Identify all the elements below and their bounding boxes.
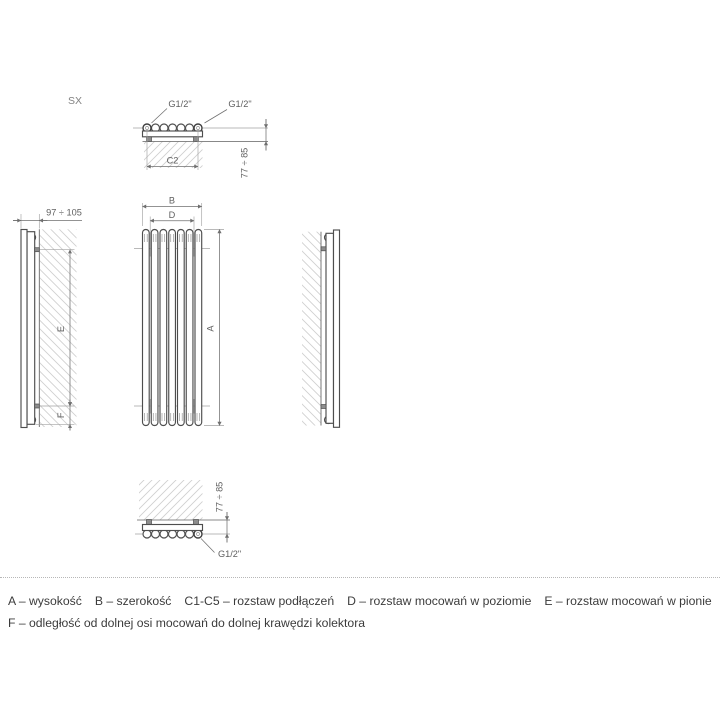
dim-label-wall-distance: 97 ÷ 105 [46,207,82,217]
connection-label-bottom: G1/2" [218,549,241,559]
collector-bar [143,525,203,531]
dim-label-mount-horizontal: D [169,210,176,220]
connection-circle [194,530,202,538]
wall-hatch [302,232,321,426]
dim-label-height: A [206,325,216,332]
right-side-view [302,230,340,427]
dim-label-c2: C2 [167,156,179,166]
tube-circles [143,530,202,538]
legend-item-b: B – szerokość [95,594,172,608]
connection-label-left: G1/2" [168,99,191,109]
leader-line [201,539,215,553]
mount-bracket [321,405,326,409]
legend: A – wysokość B – szerokość C1-C5 – rozst… [0,577,720,630]
legend-item-d: D – rozstaw mocowań w poziomie [347,594,531,608]
dim-label-depth-top: 77 ÷ 85 [240,148,250,179]
collector-profile [27,232,35,425]
legend-line-1: A – wysokość B – szerokość C1-C5 – rozst… [8,594,712,608]
mount-bracket [194,520,199,525]
dim-label-mount-vertical: E [56,326,66,332]
mount-bracket [147,520,152,525]
model-label: SX [68,95,82,107]
mount-bracket [321,247,326,251]
panel-profile [21,230,27,428]
mount-bracket [35,404,40,408]
wall-hatch [139,480,203,520]
dim-label-bottom-offset: F [56,412,66,418]
leader-line [152,109,168,124]
dim-label-width: B [169,196,175,206]
radiator-dimension-drawing: SX G1/2" G1/2" C2 77 ÷ 85 [0,0,720,720]
collector-bar [143,131,203,137]
dim-label-depth-bottom: 77 ÷ 85 [215,482,225,513]
radiator-tubes [143,230,202,426]
bottom-view: 77 ÷ 85 G1/2" [135,480,241,559]
panel-profile [334,230,340,427]
front-view: B D A [134,196,224,426]
legend-item-e: E – rozstaw mocowań w pionie [544,594,711,608]
legend-item-f: F – odległość od dolnej osi mocowań do d… [8,616,365,630]
leader-line [205,110,228,124]
legend-item-a: A – wysokość [8,594,82,608]
legend-item-c: C1-C5 – rozstaw podłączeń [184,594,334,608]
diagram-canvas: SX G1/2" G1/2" C2 77 ÷ 85 [0,0,720,578]
collector-profile [326,233,334,423]
top-view: G1/2" G1/2" C2 77 ÷ 85 [133,99,268,178]
left-side-view: 97 ÷ 105 E F [13,207,82,430]
mount-bracket [35,248,40,252]
legend-line-2: F – odległość od dolnej osi mocowań do d… [8,616,712,630]
connection-label-right: G1/2" [228,99,251,109]
